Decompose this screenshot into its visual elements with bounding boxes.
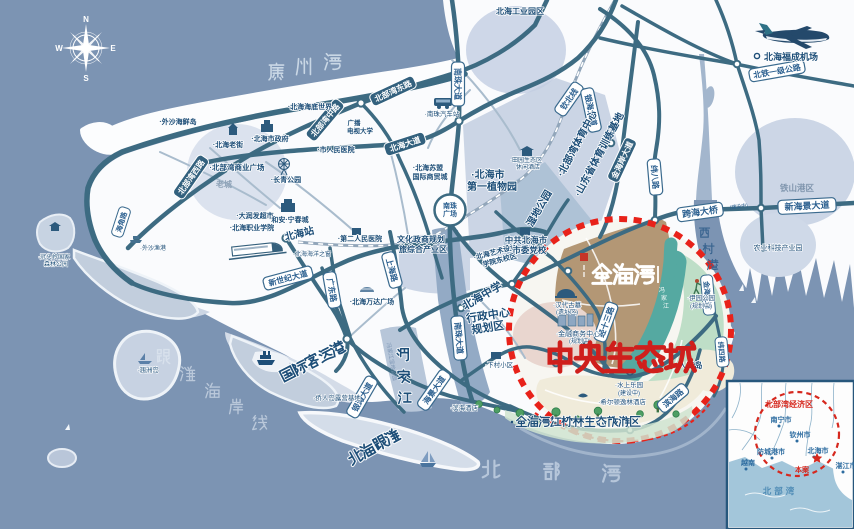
- svg-text:北海工业园区: 北海工业园区: [496, 6, 544, 16]
- svg-text:家: 家: [661, 294, 667, 302]
- svg-text:钦州市: 钦州市: [789, 430, 811, 439]
- svg-text:·涠洲岛: ·涠洲岛: [137, 365, 159, 374]
- svg-text:·下村小区: ·下村小区: [485, 360, 514, 369]
- svg-text:广播: 广播: [348, 118, 362, 127]
- svg-text:(遗址区): (遗址区): [556, 308, 578, 316]
- svg-text:·南珠汽车站: ·南珠汽车站: [425, 109, 460, 118]
- svg-text:·田园生态区: ·田园生态区: [510, 156, 542, 164]
- svg-text:·希尔顿逸林酒店: ·希尔顿逸林酒店: [598, 397, 646, 406]
- svg-text:第一植物园: 第一植物园: [467, 180, 517, 193]
- svg-text:·市人民医院: ·市人民医院: [317, 145, 354, 154]
- svg-text:广场: 广场: [443, 209, 457, 218]
- svg-text:老城: 老城: [215, 179, 232, 189]
- svg-text:湛江市: 湛江市: [836, 461, 854, 470]
- svg-text:·北海职业学院: ·北海职业学院: [230, 223, 274, 232]
- svg-text:·外沙渔港: ·外沙渔港: [140, 244, 166, 252]
- svg-text:·北海市: ·北海市: [471, 168, 504, 181]
- svg-text:·侨人岛露营基地: ·侨人岛露营基地: [313, 393, 361, 402]
- svg-text:国际商贸城: 国际商贸城: [413, 172, 448, 181]
- svg-text:·北海苏盟: ·北海苏盟: [413, 163, 443, 172]
- svg-text:W: W: [55, 44, 63, 53]
- svg-text:冯: 冯: [659, 286, 665, 294]
- svg-text:S: S: [83, 74, 89, 83]
- svg-text:中共北海市: 中共北海市: [505, 235, 548, 245]
- svg-text:·伊园公园: ·伊园公园: [687, 293, 715, 302]
- svg-text:北海福成机场: 北海福成机场: [764, 51, 818, 62]
- svg-text:北海市: 北海市: [808, 446, 829, 455]
- svg-text:和安·宁春城: 和安·宁春城: [270, 215, 308, 224]
- svg-text:旅综合产业区: 旅综合产业区: [399, 244, 447, 254]
- svg-text:·滨海酒店: ·滨海酒店: [450, 403, 479, 412]
- svg-text:北部湾经济区: 北部湾经济区: [765, 399, 813, 409]
- svg-text:(建设中): (建设中): [618, 389, 640, 397]
- svg-text:电视大学: 电视大学: [347, 126, 374, 135]
- svg-text:·北海海洋之窗: ·北海海洋之窗: [293, 250, 331, 258]
- svg-text:·水上乐园: ·水上乐园: [615, 380, 643, 389]
- svg-text:铁山港区: 铁山港区: [780, 183, 815, 193]
- svg-text:休闲酒店: 休闲酒店: [516, 163, 540, 171]
- svg-text:南宁市: 南宁市: [771, 415, 792, 424]
- svg-text:越南: 越南: [740, 458, 755, 467]
- svg-text:·北海万达广场: ·北海万达广场: [350, 297, 394, 306]
- svg-text:·第二人民医院: ·第二人民医院: [338, 234, 382, 243]
- svg-text:·外沙海鲜岛: ·外沙海鲜岛: [159, 117, 196, 126]
- svg-text:本案: 本案: [794, 465, 810, 474]
- svg-text:森林公园: 森林公园: [44, 260, 68, 268]
- svg-text:·金融商务中心: ·金融商务中心: [556, 329, 600, 338]
- svg-text:北部湾: 北部湾: [763, 486, 798, 496]
- svg-text:·冠头岭国家: ·冠头岭国家: [38, 253, 70, 261]
- svg-text:·大润发超市: ·大润发超市: [236, 211, 273, 220]
- svg-text:防城港市: 防城港市: [757, 447, 785, 456]
- svg-text:N: N: [83, 15, 89, 24]
- svg-text:南珠大道: 南珠大道: [453, 68, 463, 100]
- svg-text:(规划中): (规划中): [690, 302, 712, 310]
- svg-text:·北海市政府: ·北海市政府: [251, 134, 288, 143]
- svg-text:E: E: [110, 44, 116, 53]
- svg-text:南珠: 南珠: [443, 201, 458, 210]
- svg-text:文化政商规划: 文化政商规划: [397, 234, 445, 244]
- svg-text:·北海海底世界: ·北海海底世界: [288, 102, 333, 111]
- svg-text:·北部湾商业广场: ·北部湾商业广场: [210, 162, 265, 172]
- svg-text:·市委党校: ·市委党校: [510, 245, 547, 255]
- svg-text:农业科技产业园: 农业科技产业园: [754, 243, 803, 252]
- svg-text:·汉代古墓: ·汉代古墓: [553, 300, 582, 309]
- svg-text:江: 江: [663, 303, 669, 310]
- svg-text:·长青公园: ·长青公园: [271, 175, 301, 184]
- svg-text:·北海老街: ·北海老街: [213, 140, 243, 149]
